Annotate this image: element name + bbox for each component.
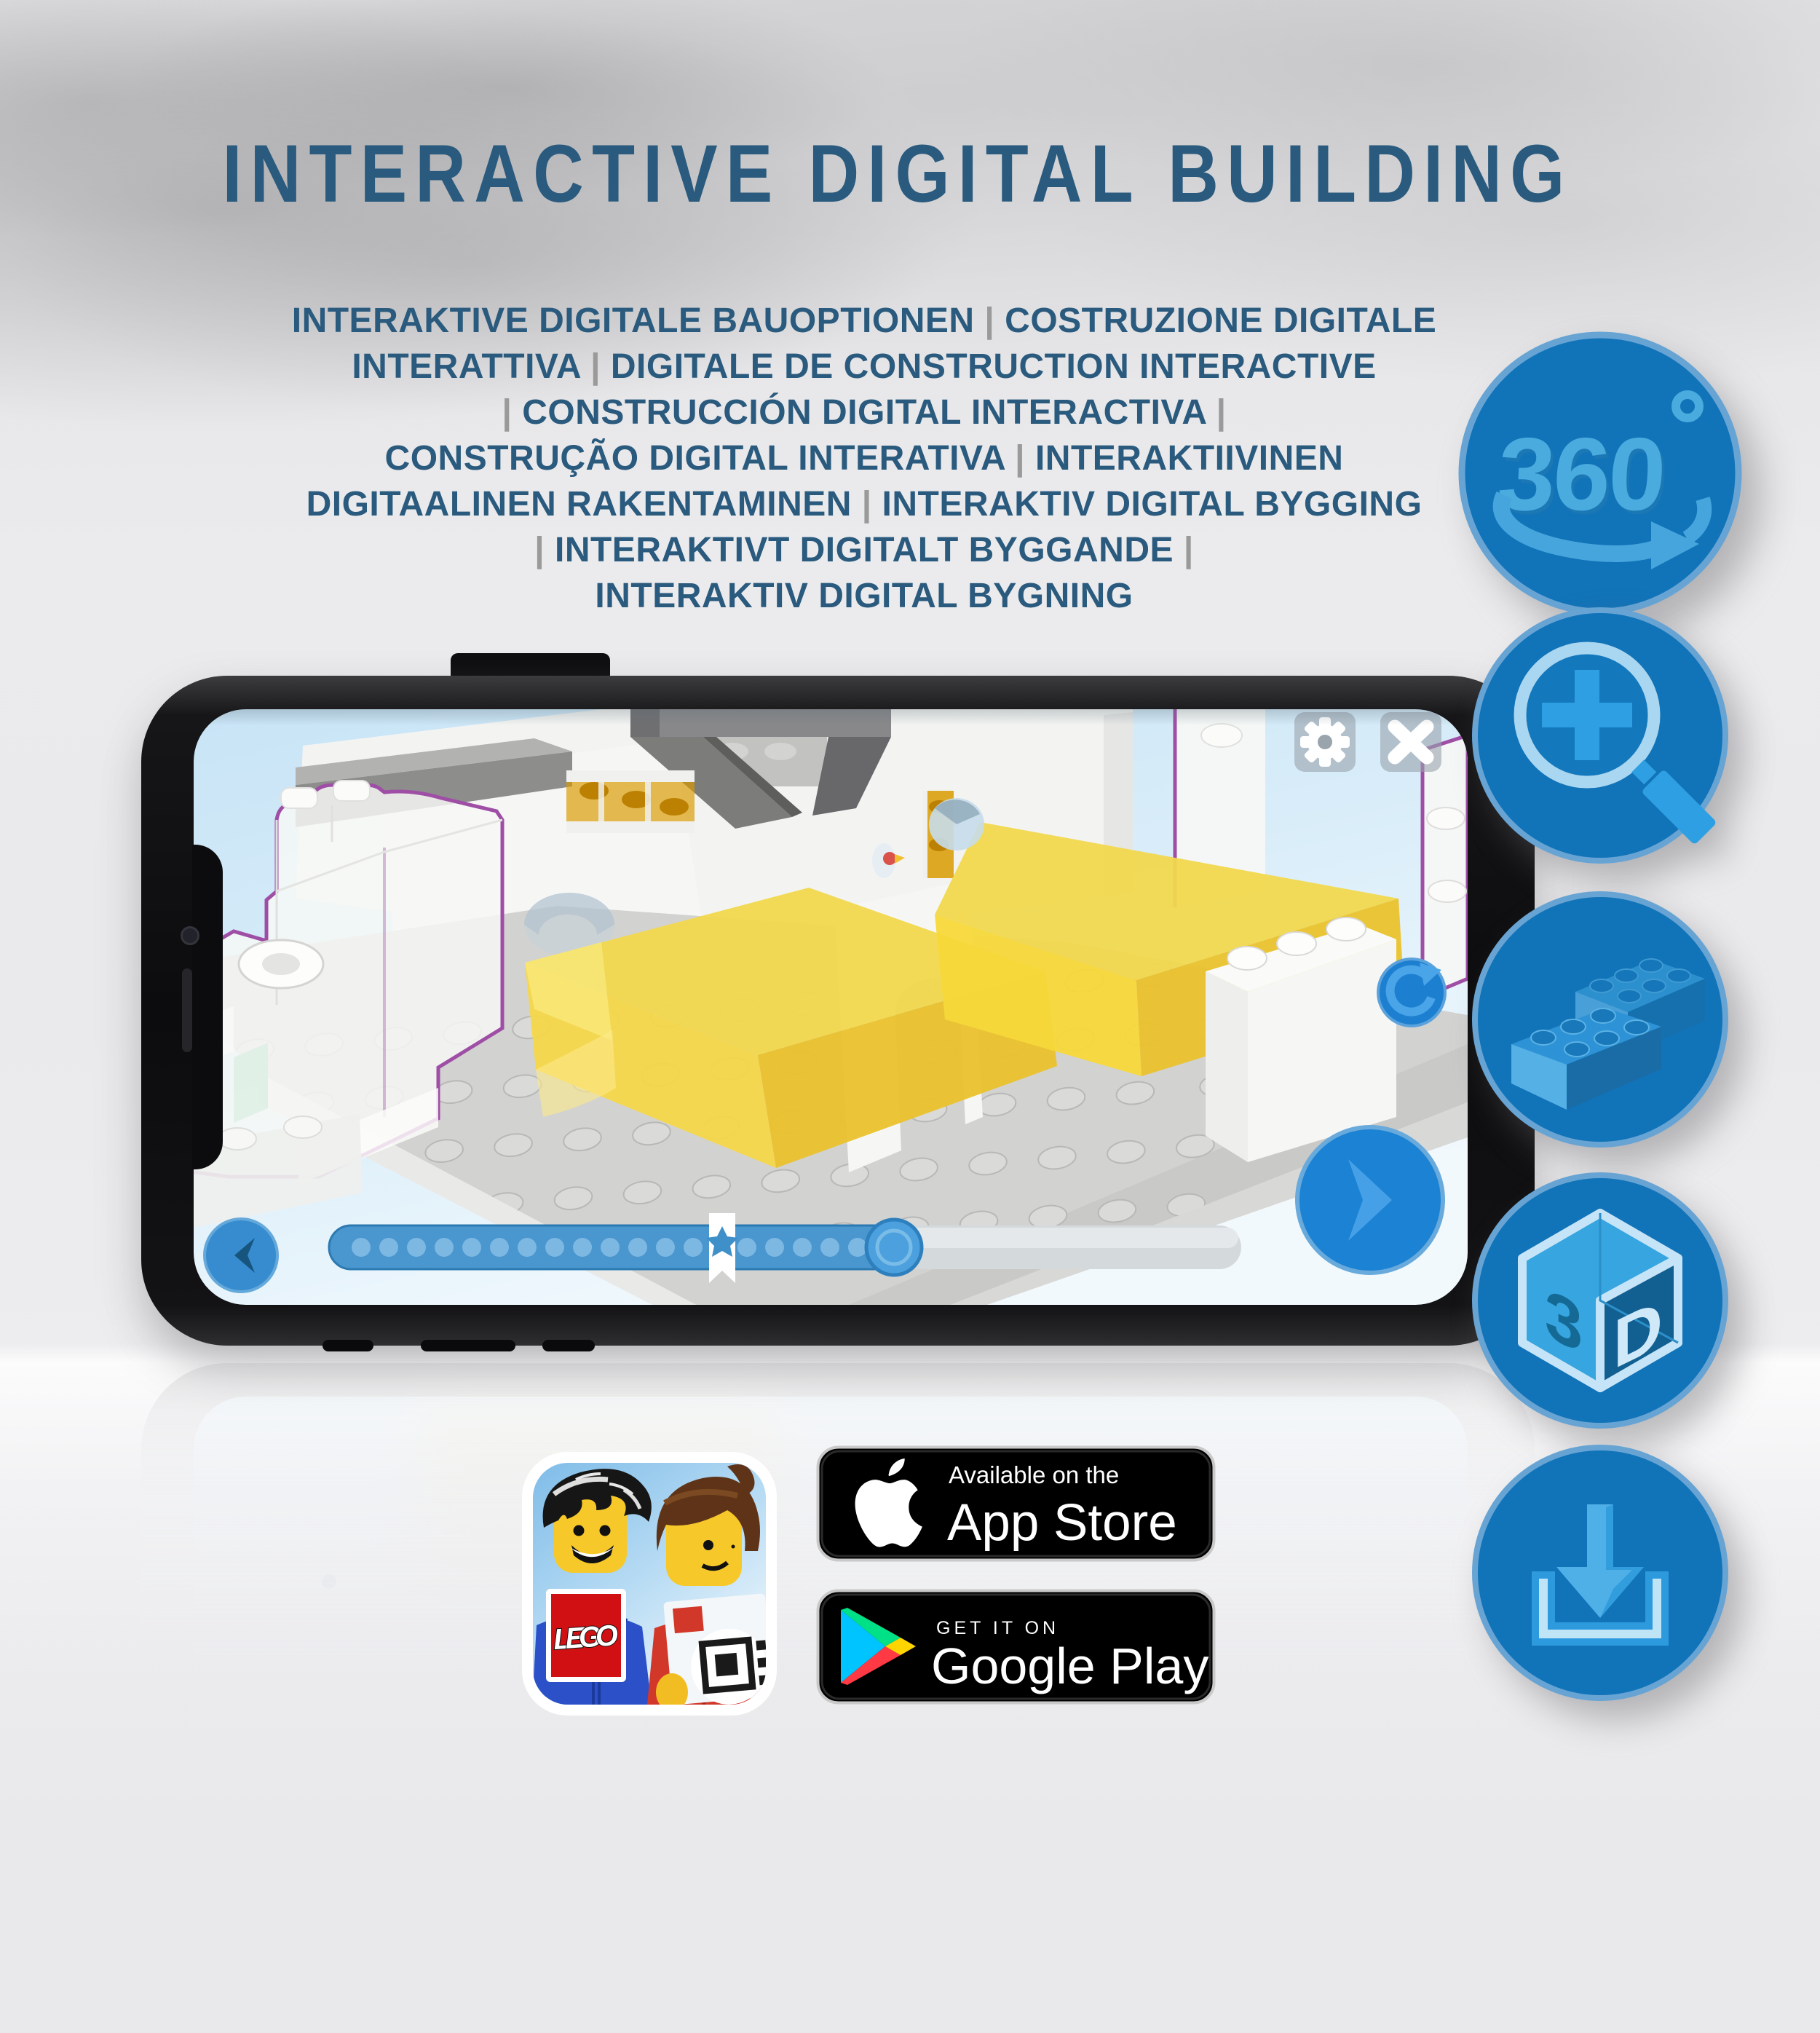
svg-text:LEGO: LEGO — [553, 1619, 620, 1656]
svg-text:360: 360 — [1495, 417, 1666, 532]
svg-text:Available on the: Available on the — [949, 1461, 1119, 1488]
svg-text:GET IT ON: GET IT ON — [936, 1618, 1059, 1638]
svg-text:Google Play: Google Play — [931, 1638, 1208, 1694]
svg-text:App Store: App Store — [947, 1494, 1177, 1552]
